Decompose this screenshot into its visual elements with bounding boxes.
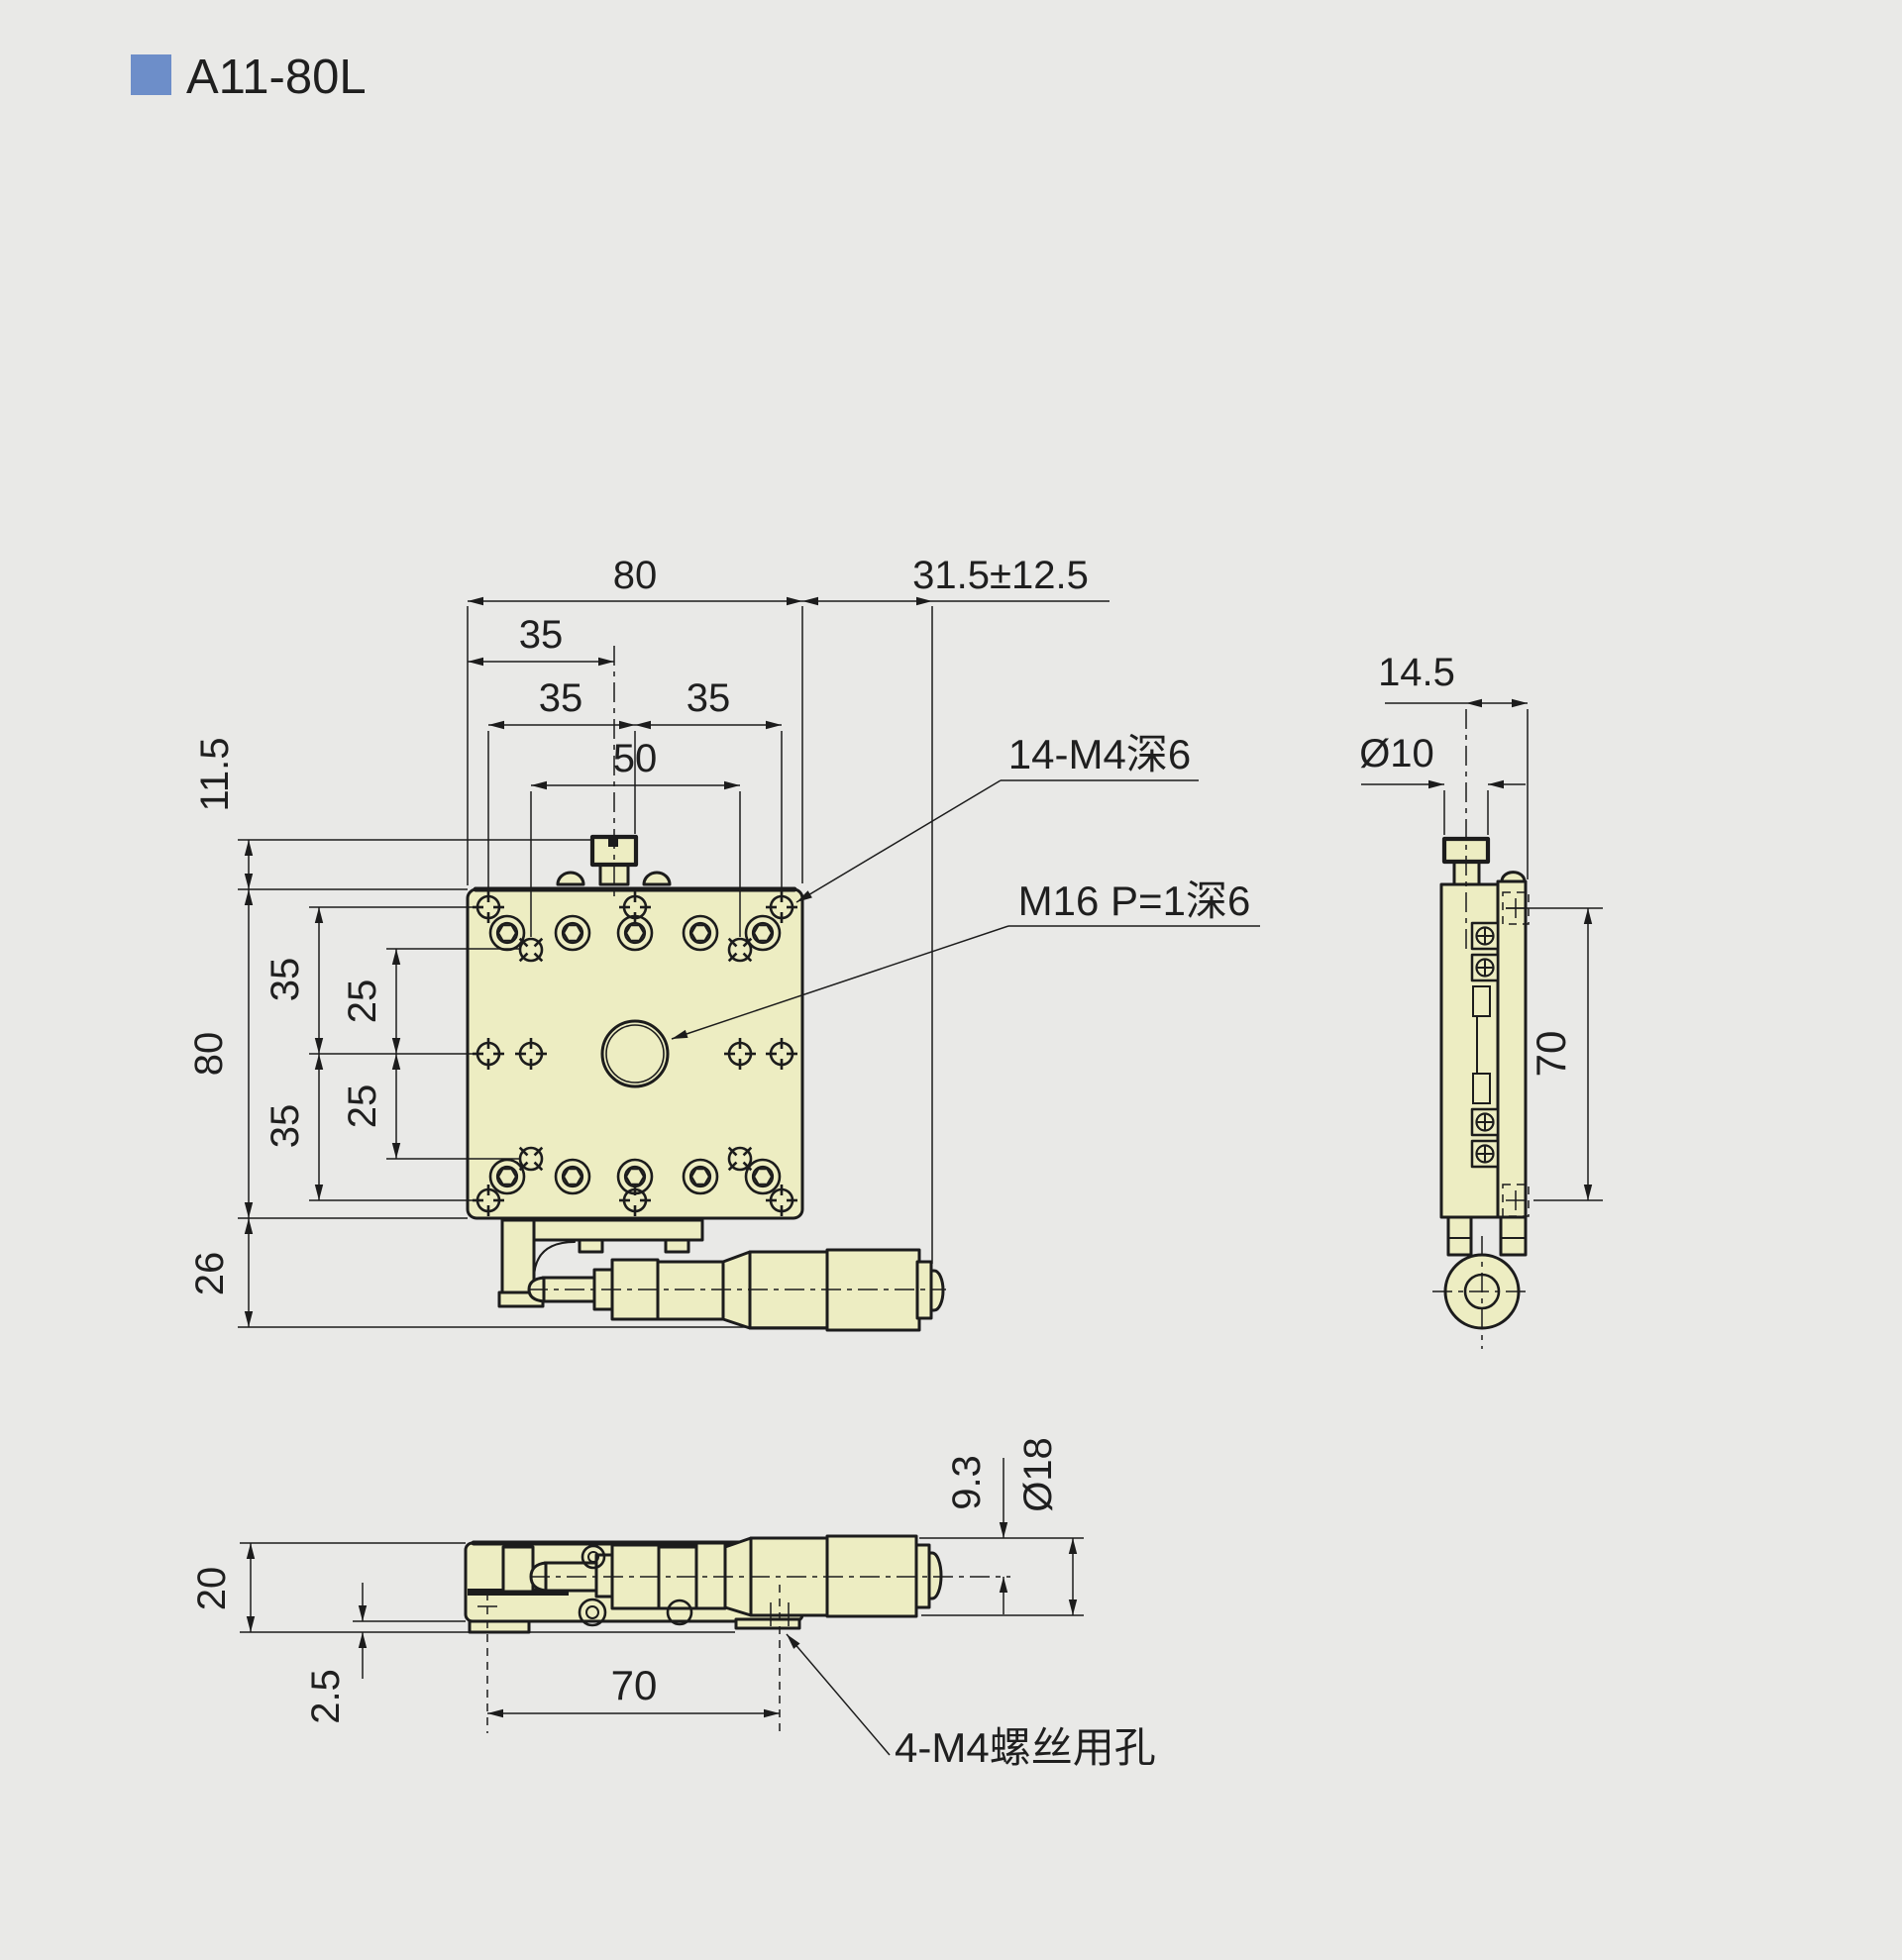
dim-label: 80	[613, 554, 658, 597]
side-screw	[1472, 955, 1498, 980]
front-collar	[696, 1543, 725, 1608]
dim-label: 80	[187, 1032, 231, 1077]
dim-label: 35	[519, 613, 564, 657]
front-sleeve	[659, 1547, 696, 1608]
dim-label: 35	[687, 676, 731, 720]
callout-tapped-holes: 14-M4深6	[1008, 731, 1191, 777]
side-view: 14.5 Ø10 70	[1359, 651, 1603, 1349]
side-bracket-leg	[1501, 1217, 1526, 1255]
front-foot-right	[736, 1619, 799, 1628]
dim-label: 14.5	[1378, 651, 1455, 694]
top-screw-right	[644, 873, 670, 884]
side-micrometer-end	[1432, 1217, 1532, 1349]
bracket-fillet	[534, 1242, 575, 1280]
dim-label: 31.5±12.5	[912, 554, 1089, 597]
sleeve	[658, 1262, 723, 1319]
dim-label: 9.3	[945, 1455, 989, 1510]
side-plate-bump	[1502, 873, 1525, 881]
dim-label: 35	[539, 676, 583, 720]
dim-label: 20	[190, 1567, 234, 1611]
dim-label: 35	[264, 958, 307, 1002]
technical-drawing: A11-80L	[0, 0, 1902, 1960]
dim-label: Ø10	[1359, 732, 1434, 775]
bracket-tab	[580, 1240, 602, 1252]
callout-clearance-holes: 4-M4螺丝用孔	[895, 1724, 1156, 1771]
title-block: A11-80L	[131, 51, 367, 104]
side-moving-plate	[1498, 881, 1526, 1217]
top-view: 80 31.5±12.5 35 35 35 50 11.5 80 35 25 2…	[187, 554, 1260, 1330]
lock-knob-slot	[608, 835, 618, 847]
side-screw	[1472, 1109, 1498, 1135]
dim-label: 70	[1528, 1031, 1574, 1078]
side-screw	[1472, 923, 1498, 949]
dim-label: 25	[341, 980, 384, 1024]
front-leader	[787, 1634, 890, 1755]
catalog-drawing-sheet: A11-80L	[0, 0, 1902, 1960]
front-foot-left	[470, 1621, 529, 1632]
callout-center-thread: M16 P=1深6	[1018, 877, 1251, 924]
dim-label: 2.5	[304, 1669, 348, 1724]
front-bracket	[503, 1547, 533, 1592]
dim-label: 35	[264, 1104, 307, 1149]
side-bracket-leg	[1448, 1217, 1471, 1255]
dim-label: 26	[188, 1252, 232, 1296]
dim-label: 11.5	[193, 738, 237, 812]
ratchet-button	[931, 1271, 943, 1310]
top-screw-left	[558, 873, 583, 884]
front-view: 20 2.5 70 9.3 Ø18 4-M4螺丝用孔	[190, 1437, 1156, 1771]
dim-label: 50	[613, 737, 658, 780]
bracket-tab	[666, 1240, 688, 1252]
dim-label: 25	[341, 1084, 384, 1129]
front-ratchet-button	[929, 1553, 941, 1599]
side-screw	[1472, 1141, 1498, 1167]
dim-label: 70	[611, 1662, 658, 1708]
title-accent-square	[131, 54, 171, 95]
micrometer-assembly-top	[499, 1220, 946, 1330]
dim-label: Ø18	[1016, 1437, 1060, 1512]
page-title: A11-80L	[186, 51, 367, 104]
